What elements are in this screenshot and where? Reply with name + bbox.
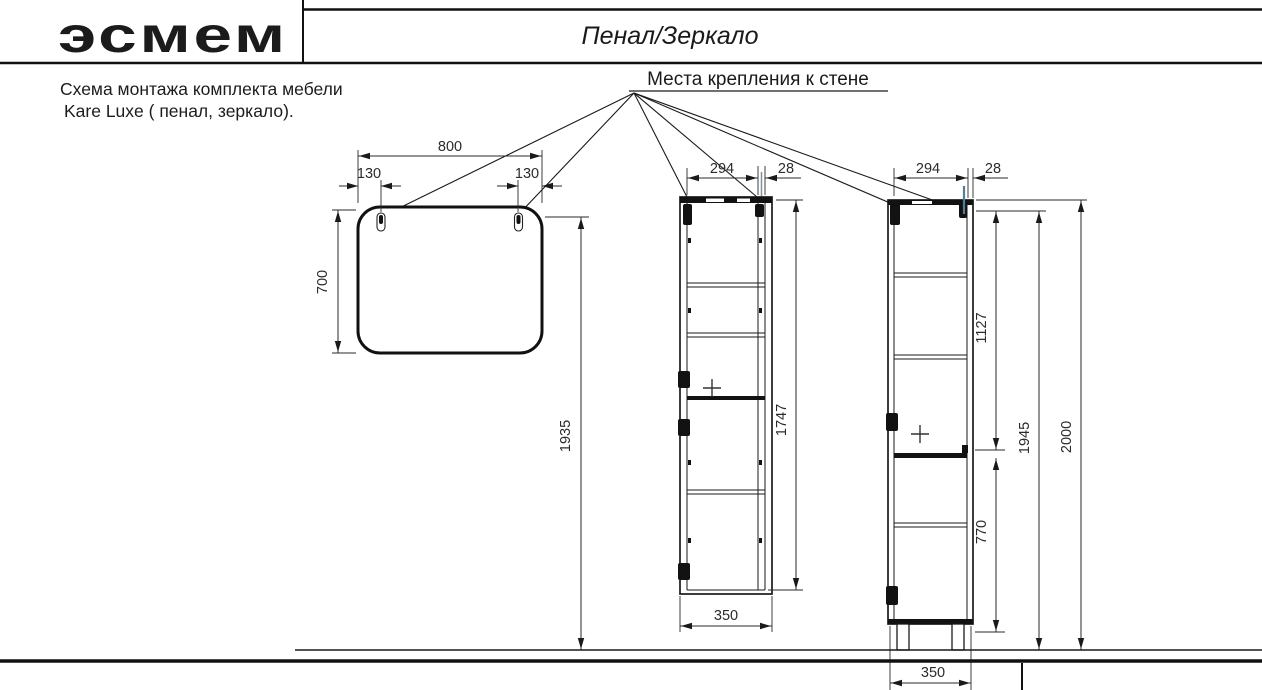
floor-and-border (0, 650, 1262, 690)
sheet-title: Пенал/Зеркало (581, 22, 758, 50)
dim-side-panel: 28 (765, 161, 801, 181)
dim-text-294-side: 294 (710, 161, 734, 177)
cabinet-front-base (888, 619, 973, 624)
mirror-keyhole-right (515, 213, 523, 231)
dim-front-panel: 28 (973, 161, 1008, 181)
cabinet-front-view: 294 28 1127 770 1945 (886, 161, 1087, 690)
dim-front-upper-section: 1127 (974, 211, 1046, 450)
cabinet-side-top-panel (680, 197, 772, 203)
cabinet-front-divider (894, 453, 967, 458)
mirror-keyhole-left (377, 213, 385, 231)
dim-text-294-front: 294 (916, 161, 940, 177)
dim-front-body-height: 1945 (1017, 211, 1042, 650)
cabinet-side-divider (687, 396, 765, 400)
dim-mirror-mount-height: 1935 (545, 217, 589, 650)
dim-front-lower-section: 770 (974, 458, 1005, 632)
dim-text-2000: 2000 (1059, 421, 1075, 453)
note-line-1: Схема монтажа комплекта мебели (60, 79, 343, 99)
dim-text-350-front: 350 (921, 665, 945, 681)
cabinet-front-legs (897, 624, 964, 650)
dim-text-1747: 1747 (774, 404, 790, 436)
dim-text-1127: 1127 (974, 312, 990, 343)
dim-mirror-offset-left: 130 (339, 166, 401, 212)
dim-text-800: 800 (438, 139, 462, 155)
dim-text-350-side: 350 (714, 608, 738, 624)
mirror-drawing: 800 130 130 700 (315, 139, 589, 650)
dim-text-28-front: 28 (985, 161, 1001, 177)
dim-text-1945: 1945 (1017, 422, 1033, 454)
dim-text-130-left: 130 (357, 166, 381, 182)
dim-text-700: 700 (315, 270, 331, 294)
wall-mount-label: Места крепления к стене (647, 69, 869, 90)
cabinet-side-view: 294 28 1747 350 (678, 161, 803, 632)
dim-front-inner-width: 294 (894, 161, 973, 198)
dim-side-inner-width: 294 (687, 161, 765, 195)
dim-text-1935: 1935 (558, 420, 574, 452)
dim-text-770: 770 (974, 520, 990, 544)
description-note: Схема монтажа комплекта мебели Kare Luxe… (60, 79, 343, 121)
dim-text-130-right: 130 (515, 166, 539, 182)
callout-leader-lines (383, 93, 963, 216)
brand-logo: эсмем (58, 7, 288, 63)
cabinet-front-body (888, 200, 973, 624)
dim-mirror-offset-right: 130 (497, 166, 562, 212)
note-line-2: Kare Luxe ( пенал, зеркало). (64, 101, 294, 121)
dim-text-28-side: 28 (778, 161, 794, 177)
title-block: эсмем Пенал/Зеркало (0, 0, 1262, 63)
wall-mount-callout: Места крепления к стене (383, 69, 963, 216)
drawing-sheet: эсмем Пенал/Зеркало Схема монтажа компле… (0, 0, 1262, 690)
dim-mirror-height: 700 (315, 210, 356, 353)
dim-side-depth: 350 (680, 596, 772, 632)
dim-side-height: 1747 (768, 200, 803, 590)
